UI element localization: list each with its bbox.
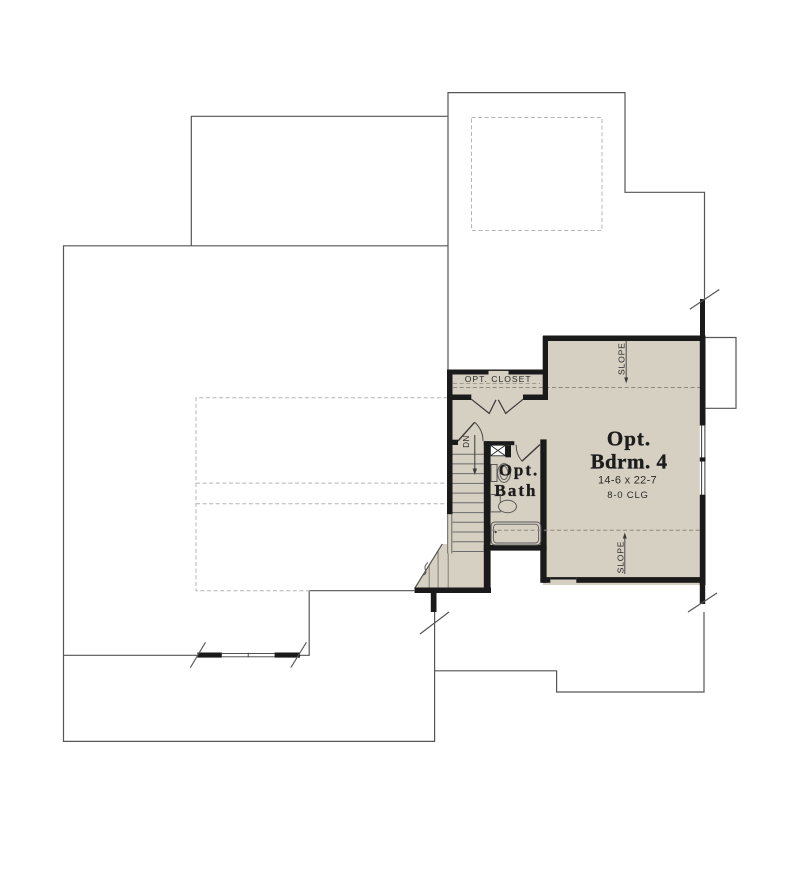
svg-text:SLOPE: SLOPE bbox=[617, 342, 627, 375]
svg-text:DN: DN bbox=[462, 435, 471, 448]
svg-text:SLOPE: SLOPE bbox=[615, 541, 625, 574]
svg-text:OPT. CLOSET: OPT. CLOSET bbox=[465, 374, 532, 384]
svg-text:Bdrm. 4: Bdrm. 4 bbox=[591, 450, 668, 474]
svg-text:14-6 x 22-7: 14-6 x 22-7 bbox=[598, 475, 657, 487]
svg-text:Opt.: Opt. bbox=[607, 427, 651, 451]
svg-text:8-0 CLG: 8-0 CLG bbox=[607, 490, 649, 501]
svg-text:Opt.: Opt. bbox=[499, 461, 540, 480]
svg-text:Bath: Bath bbox=[495, 481, 538, 500]
